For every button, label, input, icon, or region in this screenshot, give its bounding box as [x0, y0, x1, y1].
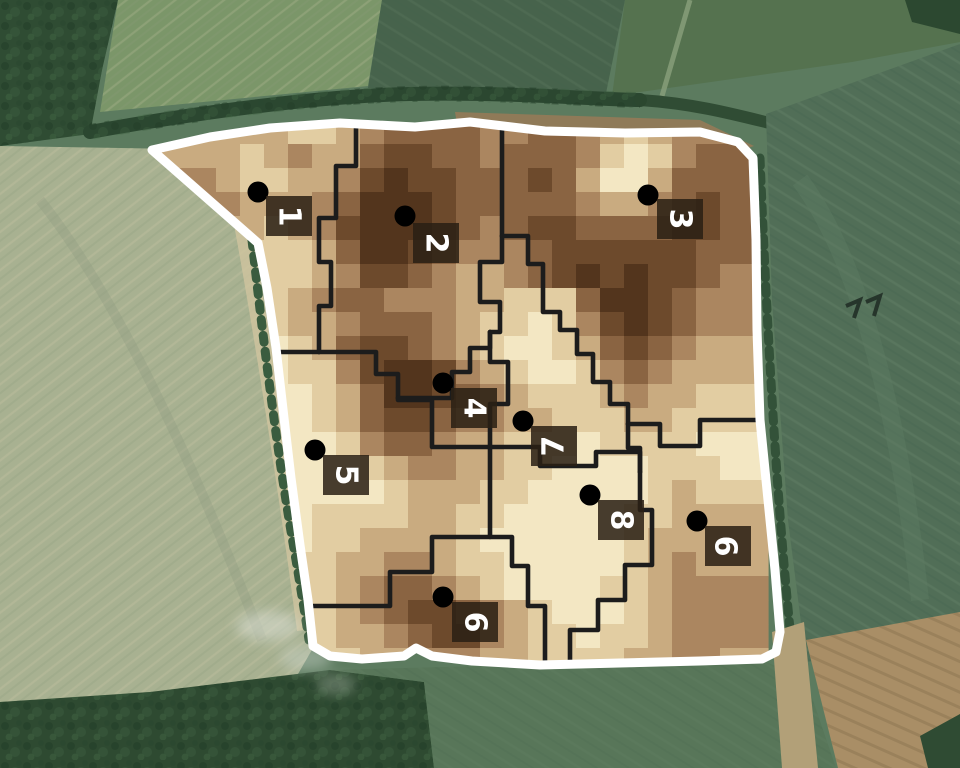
raster-cell	[552, 168, 577, 193]
raster-cell	[528, 552, 553, 577]
raster-cell	[600, 216, 625, 241]
raster-cell	[552, 144, 577, 169]
raster-cell	[408, 144, 433, 169]
raster-cell	[312, 336, 337, 361]
raster-cell	[336, 336, 361, 361]
raster-cell	[600, 552, 625, 577]
aerial-map-canvas[interactable]: 123456789	[0, 0, 960, 768]
raster-cell	[288, 240, 313, 265]
raster-cell	[600, 576, 625, 601]
raster-cell	[528, 240, 553, 265]
raster-cell	[744, 624, 769, 649]
raster-cell	[576, 216, 601, 241]
raster-cell	[432, 480, 457, 505]
raster-cell	[672, 384, 697, 409]
raster-cell	[360, 552, 385, 577]
raster-cell	[600, 408, 625, 433]
raster-cell	[672, 264, 697, 289]
raster-cell	[672, 336, 697, 361]
raster-cell	[312, 504, 337, 529]
raster-cell	[360, 576, 385, 601]
raster-cell	[384, 480, 409, 505]
raster-cell	[624, 600, 649, 625]
raster-cell	[360, 288, 385, 313]
raster-cell	[624, 576, 649, 601]
zone-label-text: 3	[663, 209, 698, 230]
raster-cell	[336, 192, 361, 217]
raster-cell	[456, 456, 481, 481]
raster-cell	[432, 264, 457, 289]
raster-cell	[336, 504, 361, 529]
raster-cell	[432, 552, 457, 577]
raster-cell	[552, 336, 577, 361]
raster-cell	[336, 360, 361, 385]
raster-cell	[600, 240, 625, 265]
raster-cell	[624, 456, 649, 481]
raster-cell	[288, 288, 313, 313]
raster-cell	[360, 240, 385, 265]
raster-cell	[504, 504, 529, 529]
raster-cell	[360, 624, 385, 649]
raster-cell	[336, 216, 361, 241]
raster-cell	[336, 264, 361, 289]
raster-cell	[528, 144, 553, 169]
raster-cell	[720, 624, 745, 649]
raster-cell	[696, 264, 721, 289]
raster-cell	[504, 576, 529, 601]
raster-cell	[696, 360, 721, 385]
raster-cell	[480, 552, 505, 577]
raster-cell	[312, 576, 337, 601]
raster-cell	[384, 600, 409, 625]
raster-cell	[672, 480, 697, 505]
raster-cell	[408, 288, 433, 313]
raster-cell	[552, 528, 577, 553]
raster-cell	[312, 600, 337, 625]
raster-cell	[672, 312, 697, 337]
raster-cell	[288, 336, 313, 361]
raster-cell	[360, 336, 385, 361]
raster-cell	[720, 168, 745, 193]
raster-cell	[528, 600, 553, 625]
raster-cell	[648, 480, 673, 505]
raster-cell	[720, 216, 745, 241]
raster-cell	[456, 192, 481, 217]
raster-cell	[696, 288, 721, 313]
raster-cell	[696, 600, 721, 625]
raster-cell	[552, 240, 577, 265]
raster-cell	[648, 288, 673, 313]
raster-cell	[576, 504, 601, 529]
raster-cell	[552, 624, 577, 649]
raster-cell	[384, 312, 409, 337]
raster-cell	[720, 288, 745, 313]
raster-cell	[336, 576, 361, 601]
raster-cell	[504, 240, 529, 265]
raster-cell	[384, 264, 409, 289]
raster-cell	[696, 384, 721, 409]
raster-cell	[672, 552, 697, 577]
raster-cell	[600, 336, 625, 361]
zone-label-text: 4	[457, 398, 492, 419]
raster-cell	[504, 528, 529, 553]
raster-cell	[408, 456, 433, 481]
zone-dot[interactable]	[305, 440, 326, 461]
raster-cell	[600, 288, 625, 313]
raster-cell	[360, 312, 385, 337]
raster-cell	[216, 144, 241, 169]
raster-cell	[624, 624, 649, 649]
raster-cell	[288, 360, 313, 385]
raster-cell	[384, 576, 409, 601]
raster-cell	[696, 168, 721, 193]
raster-cell	[648, 456, 673, 481]
raster-cell	[504, 456, 529, 481]
raster-cell	[528, 192, 553, 217]
raster-cell	[432, 312, 457, 337]
raster-cell	[432, 168, 457, 193]
raster-cell	[240, 144, 265, 169]
raster-cell	[720, 312, 745, 337]
raster-cell	[312, 360, 337, 385]
raster-cell	[672, 408, 697, 433]
raster-cell	[528, 312, 553, 337]
raster-cell	[288, 408, 313, 433]
zone-label-text: 6	[458, 612, 493, 633]
raster-cell	[288, 264, 313, 289]
raster-cell	[720, 456, 745, 481]
raster-cell	[288, 144, 313, 169]
raster-cell	[576, 336, 601, 361]
raster-cell	[360, 144, 385, 169]
raster-cell	[528, 384, 553, 409]
raster-cell	[576, 240, 601, 265]
raster-cell	[288, 384, 313, 409]
raster-cell	[672, 456, 697, 481]
raster-cell	[384, 336, 409, 361]
raster-cell	[528, 576, 553, 601]
raster-cell	[672, 168, 697, 193]
raster-cell	[432, 144, 457, 169]
raster-cell	[408, 480, 433, 505]
raster-cell	[288, 312, 313, 337]
raster-cell	[264, 144, 289, 169]
raster-cell	[504, 336, 529, 361]
raster-cell	[552, 288, 577, 313]
raster-cell	[648, 360, 673, 385]
raster-cell	[456, 168, 481, 193]
raster-cell	[408, 336, 433, 361]
raster-cell	[720, 240, 745, 265]
raster-cell	[336, 408, 361, 433]
raster-cell	[504, 432, 529, 457]
raster-cell	[672, 600, 697, 625]
zone-label-text: 2	[419, 233, 454, 254]
raster-cell	[648, 576, 673, 601]
zone-dot[interactable]	[513, 411, 534, 432]
zone-label-text: 7	[537, 436, 572, 457]
raster-cell	[336, 552, 361, 577]
raster-cell	[408, 312, 433, 337]
raster-cell	[552, 504, 577, 529]
raster-cell	[720, 480, 745, 505]
raster-cell	[552, 552, 577, 577]
zone-dot[interactable]	[395, 206, 416, 227]
raster-cell	[456, 312, 481, 337]
raster-cell	[480, 264, 505, 289]
raster-cell	[384, 408, 409, 433]
zone-dot[interactable]	[580, 485, 601, 506]
raster-cell	[648, 624, 673, 649]
raster-cell	[360, 504, 385, 529]
raster-cell	[624, 336, 649, 361]
raster-cell	[576, 144, 601, 169]
raster-cell	[432, 288, 457, 313]
raster-cell	[552, 360, 577, 385]
raster-cell	[216, 168, 241, 193]
raster-cell	[720, 384, 745, 409]
raster-cell	[528, 504, 553, 529]
raster-cell	[576, 528, 601, 553]
raster-cell	[360, 432, 385, 457]
raster-cell	[552, 192, 577, 217]
raster-cell	[288, 168, 313, 193]
raster-cell	[432, 192, 457, 217]
raster-cell	[552, 312, 577, 337]
raster-cell	[360, 216, 385, 241]
raster-cell	[648, 384, 673, 409]
raster-cell	[456, 216, 481, 241]
raster-cell	[600, 312, 625, 337]
raster-cell	[552, 384, 577, 409]
raster-cell	[456, 264, 481, 289]
raster-cell	[528, 336, 553, 361]
raster-cell	[696, 240, 721, 265]
raster-cell	[720, 192, 745, 217]
raster-cell	[408, 432, 433, 457]
raster-cell	[576, 264, 601, 289]
raster-cell	[408, 528, 433, 553]
raster-cell	[600, 600, 625, 625]
raster-cell	[696, 312, 721, 337]
raster-cell	[384, 144, 409, 169]
raster-cell	[312, 528, 337, 553]
raster-cell	[504, 624, 529, 649]
raster-cell	[672, 144, 697, 169]
raster-cell	[528, 288, 553, 313]
raster-cell	[720, 432, 745, 457]
raster-cell	[648, 600, 673, 625]
raster-cell	[504, 288, 529, 313]
raster-cell	[312, 312, 337, 337]
raster-cell	[504, 168, 529, 193]
raster-cell	[720, 504, 745, 529]
raster-cell	[600, 264, 625, 289]
raster-cell	[504, 312, 529, 337]
raster-cell	[432, 432, 457, 457]
raster-cell	[408, 624, 433, 649]
zone-dot[interactable]	[638, 185, 659, 206]
raster-cell	[600, 168, 625, 193]
zone-label-text: 9	[711, 536, 746, 557]
raster-cell	[552, 216, 577, 241]
raster-cell	[408, 264, 433, 289]
raster-cell	[336, 600, 361, 625]
raster-cell	[456, 480, 481, 505]
raster-cell	[504, 192, 529, 217]
raster-cell	[312, 192, 337, 217]
raster-cell	[696, 624, 721, 649]
raster-cell	[456, 432, 481, 457]
raster-cell	[600, 456, 625, 481]
raster-cell	[336, 624, 361, 649]
raster-cell	[720, 600, 745, 625]
raster-cell	[504, 600, 529, 625]
raster-cell	[624, 312, 649, 337]
raster-cell	[384, 240, 409, 265]
zone-label-text: 8	[604, 510, 639, 531]
raster-cell	[264, 240, 289, 265]
raster-cell	[672, 576, 697, 601]
raster-cell	[648, 336, 673, 361]
raster-cell	[384, 288, 409, 313]
raster-cell	[696, 336, 721, 361]
raster-cell	[336, 528, 361, 553]
raster-cell	[648, 144, 673, 169]
raster-cell	[720, 360, 745, 385]
raster-cell	[696, 456, 721, 481]
raster-cell	[360, 600, 385, 625]
raster-cell	[408, 360, 433, 385]
raster-cell	[552, 576, 577, 601]
raster-cell	[336, 432, 361, 457]
raster-cell	[624, 240, 649, 265]
raster-cell	[504, 264, 529, 289]
raster-cell	[576, 312, 601, 337]
raster-cell	[576, 576, 601, 601]
raster-cell	[672, 288, 697, 313]
raster-cell	[456, 504, 481, 529]
raster-cell	[624, 144, 649, 169]
raster-cell	[600, 192, 625, 217]
raster-cell	[624, 288, 649, 313]
raster-cell	[384, 624, 409, 649]
raster-cell	[408, 168, 433, 193]
raster-cell	[720, 264, 745, 289]
zone-dot[interactable]	[433, 587, 454, 608]
raster-cell	[552, 264, 577, 289]
raster-cell	[360, 192, 385, 217]
raster-cell	[576, 288, 601, 313]
zone-dot[interactable]	[433, 373, 454, 394]
raster-cell	[576, 408, 601, 433]
raster-cell	[384, 528, 409, 553]
zone-dot[interactable]	[248, 182, 269, 203]
raster-cell	[528, 360, 553, 385]
raster-cell	[528, 264, 553, 289]
zone-label-text: 5	[329, 465, 364, 486]
raster-cell	[720, 576, 745, 601]
raster-cell	[360, 384, 385, 409]
raster-cell	[576, 384, 601, 409]
raster-cell	[624, 360, 649, 385]
raster-cell	[384, 432, 409, 457]
raster-cell	[432, 336, 457, 361]
raster-cell	[648, 264, 673, 289]
raster-cell	[552, 600, 577, 625]
raster-cell	[480, 576, 505, 601]
raster-cell	[336, 312, 361, 337]
raster-cell	[528, 624, 553, 649]
raster-cell	[696, 144, 721, 169]
raster-cell	[456, 528, 481, 553]
raster-cell	[432, 504, 457, 529]
raster-cell	[528, 168, 553, 193]
raster-cell	[312, 168, 337, 193]
raster-cell	[408, 408, 433, 433]
raster-cell	[504, 144, 529, 169]
raster-cell	[528, 480, 553, 505]
raster-cell	[336, 288, 361, 313]
raster-cell	[384, 456, 409, 481]
raster-cell	[672, 240, 697, 265]
raster-cell	[720, 336, 745, 361]
raster-cell	[312, 552, 337, 577]
raster-cell	[456, 552, 481, 577]
raster-cell	[528, 528, 553, 553]
raster-cell	[312, 408, 337, 433]
raster-cell	[456, 240, 481, 265]
raster-cell	[576, 192, 601, 217]
zone-dot[interactable]	[687, 511, 708, 532]
raster-cell	[696, 480, 721, 505]
raster-cell	[336, 384, 361, 409]
raster-cell	[360, 528, 385, 553]
raster-cell	[312, 384, 337, 409]
raster-cell	[408, 504, 433, 529]
raster-cell	[672, 528, 697, 553]
raster-cell	[432, 456, 457, 481]
raster-cell	[744, 576, 769, 601]
raster-cell	[456, 144, 481, 169]
raster-cell	[672, 624, 697, 649]
raster-cell	[360, 264, 385, 289]
raster-cell	[336, 240, 361, 265]
raster-cell	[432, 528, 457, 553]
raster-cell	[648, 240, 673, 265]
raster-cell	[528, 216, 553, 241]
raster-cell	[624, 216, 649, 241]
raster-cell	[504, 480, 529, 505]
map-stage[interactable]: 123456789	[0, 0, 960, 768]
raster-cell	[456, 576, 481, 601]
raster-cell	[624, 264, 649, 289]
raster-cell	[648, 312, 673, 337]
raster-cell	[192, 144, 217, 169]
raster-cell	[336, 168, 361, 193]
raster-cell	[600, 144, 625, 169]
raster-cell	[552, 480, 577, 505]
raster-cell	[576, 552, 601, 577]
raster-cell	[600, 624, 625, 649]
raster-cell	[672, 360, 697, 385]
raster-cell	[456, 288, 481, 313]
raster-cell	[696, 576, 721, 601]
raster-cell	[360, 408, 385, 433]
raster-cell	[576, 168, 601, 193]
raster-cell	[384, 504, 409, 529]
raster-cell	[384, 168, 409, 193]
